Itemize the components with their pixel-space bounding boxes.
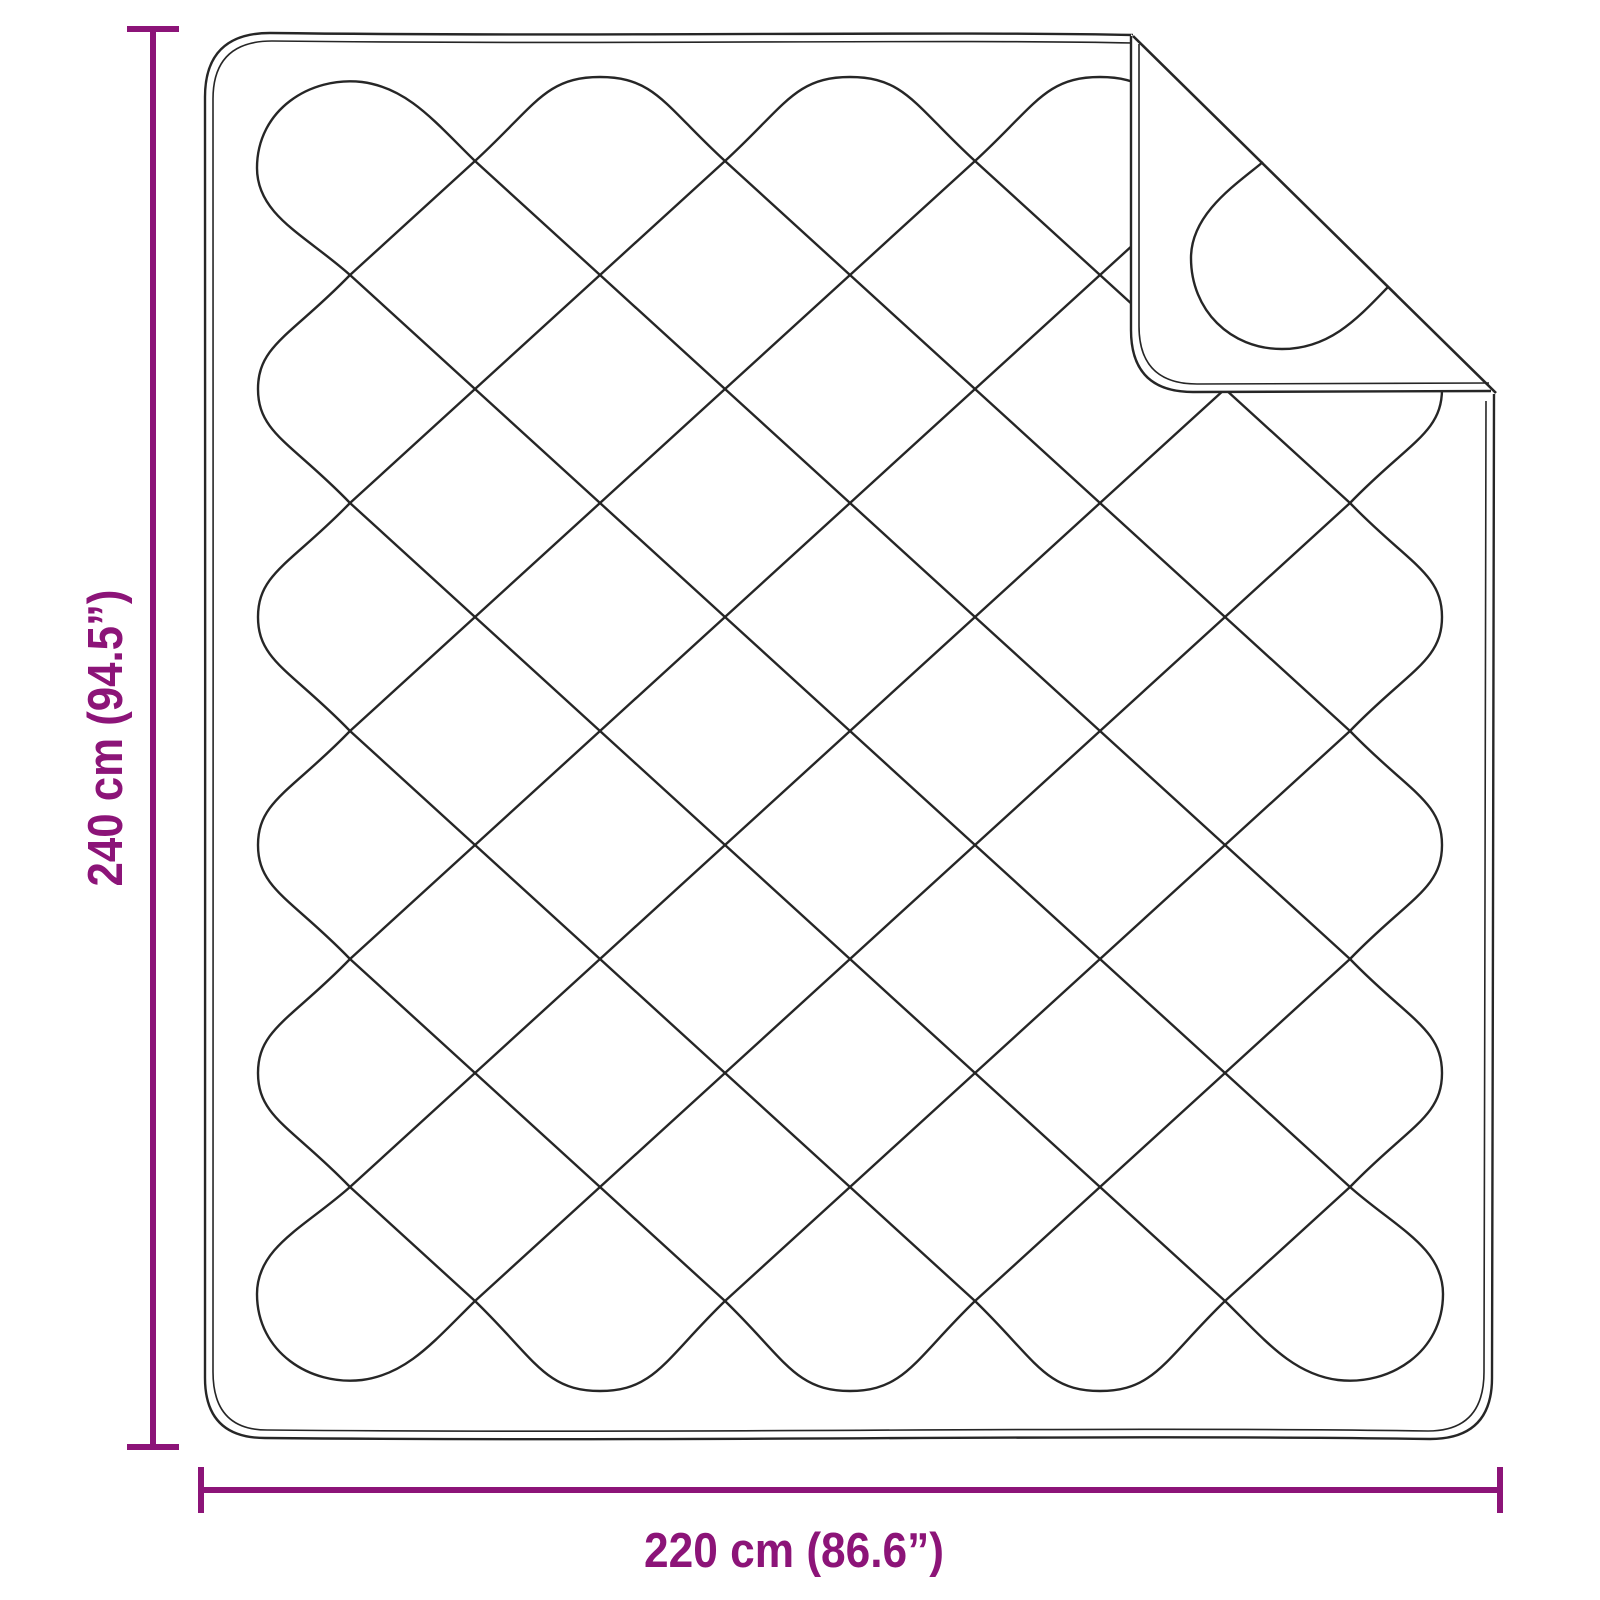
svg-text:240 cm (94.5”): 240 cm (94.5”)	[79, 590, 133, 887]
svg-text:220 cm (86.6”): 220 cm (86.6”)	[644, 1524, 944, 1578]
